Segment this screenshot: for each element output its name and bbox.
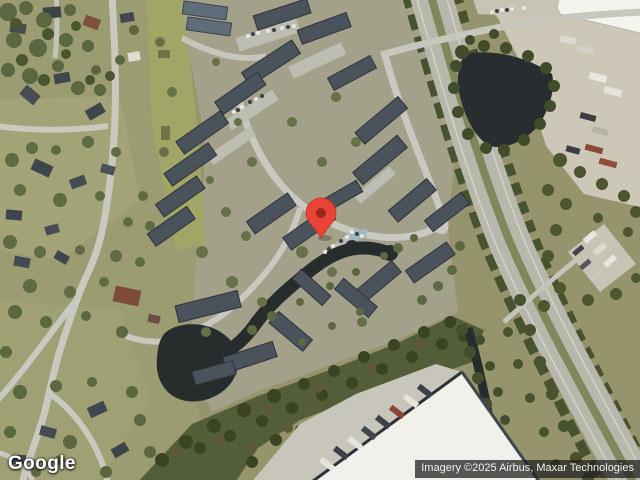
map-container: Google Imagery ©2025 Airbus, Maxar Techn… <box>0 0 640 480</box>
shed <box>158 50 170 58</box>
satellite-map-canvas[interactable] <box>0 0 640 480</box>
house <box>6 209 23 220</box>
imagery-attribution: Imagery ©2025 Airbus, Maxar Technologies <box>415 460 640 478</box>
marker-pin-hole <box>316 208 326 218</box>
google-logo[interactable]: Google <box>8 453 76 475</box>
shed <box>161 126 170 140</box>
